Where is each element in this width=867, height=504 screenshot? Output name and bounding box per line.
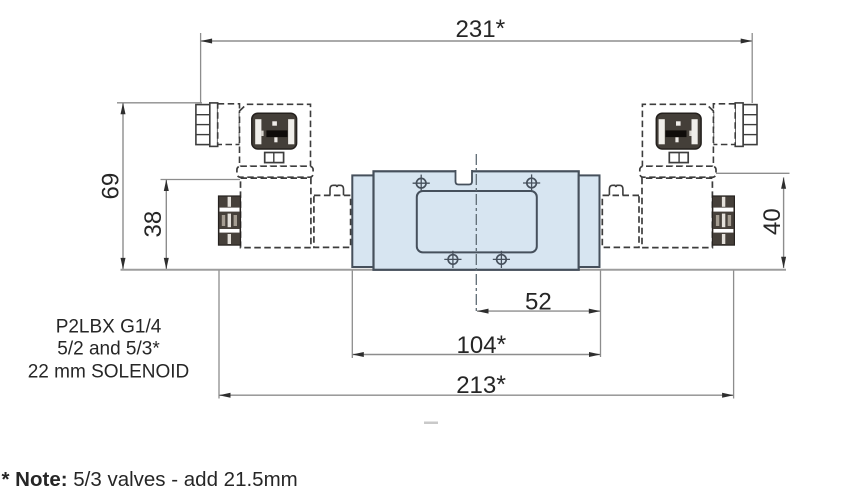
svg-text:5/2 and 5/3*: 5/2 and 5/3*	[57, 339, 160, 360]
svg-text:* Note: 5/3 valves - add 21.5m: * Note: 5/3 valves - add 21.5mm	[2, 468, 298, 491]
svg-text:P2LBX G1/4: P2LBX G1/4	[56, 317, 162, 338]
svg-text:213*: 213*	[456, 371, 506, 399]
svg-text:38: 38	[140, 211, 167, 238]
svg-text:231*: 231*	[456, 15, 506, 43]
svg-text:69: 69	[98, 173, 125, 200]
svg-text:40: 40	[759, 208, 786, 235]
svg-text:52: 52	[525, 289, 552, 316]
svg-text:22 mm SOLENOID: 22 mm SOLENOID	[28, 362, 190, 383]
svg-text:104*: 104*	[457, 331, 507, 359]
